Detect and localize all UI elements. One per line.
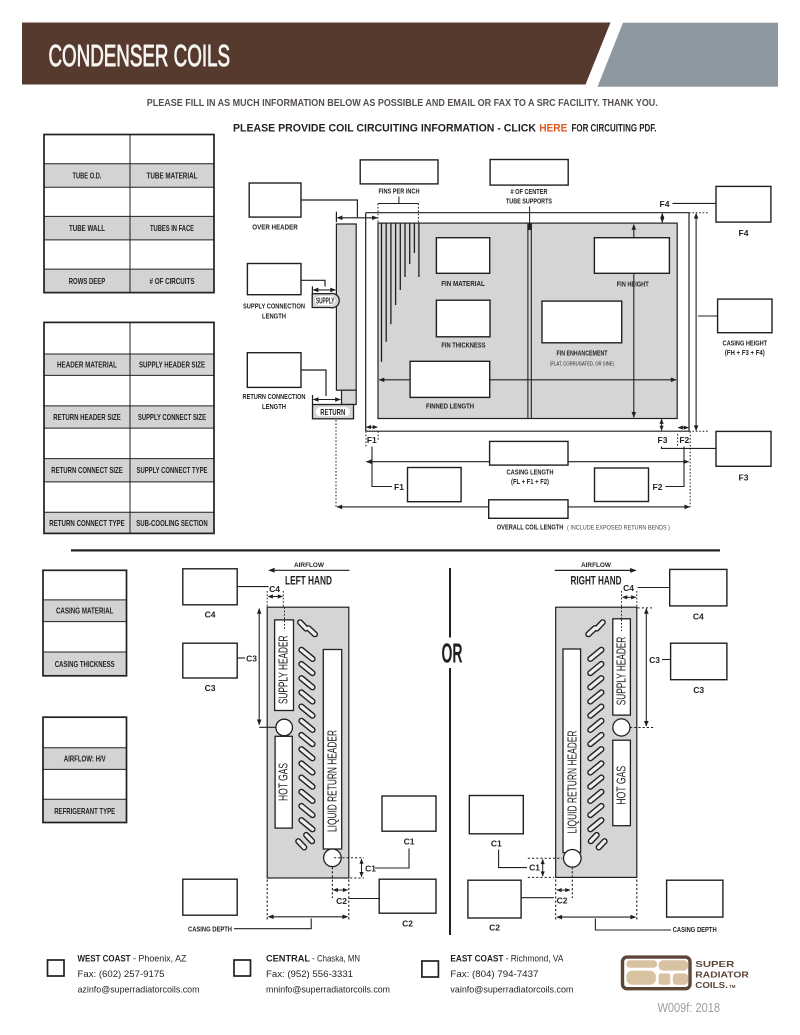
svg-text:C4: C4 [205,610,216,620]
svg-text:RETURN: RETURN [320,407,345,417]
svg-text:CASING HEIGHT: CASING HEIGHT [723,338,768,347]
svg-text:RIGHT HAND: RIGHT HAND [571,576,622,588]
svg-text:C1: C1 [404,837,415,847]
svg-text:C3: C3 [649,655,660,665]
svg-text:C2: C2 [336,896,347,906]
svg-text:AIRFLOW: AIRFLOW [294,562,325,569]
svg-text:LIQUID RETURN HEADER: LIQUID RETURN HEADER [325,730,339,832]
svg-text:F3: F3 [739,472,749,482]
svg-text:LENGTH: LENGTH [262,311,286,320]
svg-text:# OF CENTER: # OF CENTER [511,187,549,196]
svg-text:C3: C3 [246,654,257,664]
svg-text:HOT GAS: HOT GAS [276,763,290,801]
svg-text:F2: F2 [653,482,663,492]
svg-text:CASING THICKNESS: CASING THICKNESS [55,659,115,669]
svg-text:C3: C3 [693,685,704,695]
svg-text:CONDENSER COILS: CONDENSER COILS [49,39,231,73]
svg-text:(FLAT, CORRUGATED, OR SINE): (FLAT, CORRUGATED, OR SINE) [550,361,614,367]
svg-text:CENTRAL - Chaska, MN: CENTRAL - Chaska, MN [266,953,360,964]
svg-text:FINNED LENGTH: FINNED LENGTH [426,402,474,411]
svg-text:FIN THICKNESS: FIN THICKNESS [441,341,485,350]
svg-text:SUPPLY: SUPPLY [316,297,335,306]
svg-text:C2: C2 [489,923,500,933]
svg-text:TM: TM [729,984,736,989]
svg-text:SUPER: SUPER [695,960,734,969]
svg-text:(FH + F3 + F4): (FH + F3 + F4) [725,350,765,357]
svg-text:REFRIGERANT TYPE: REFRIGERANT TYPE [54,806,115,816]
svg-text:SUPPLY CONNECT TYPE: SUPPLY CONNECT TYPE [137,465,208,475]
svg-text:RADIATOR: RADIATOR [695,971,749,980]
svg-text:HERE: HERE [539,123,567,135]
svg-text:RETURN CONNECT SIZE: RETURN CONNECT SIZE [51,465,123,475]
svg-text:F1: F1 [394,482,404,492]
svg-text:Fax: (952) 556-3331: Fax: (952) 556-3331 [266,968,353,979]
svg-text:FIN ENHANCEMENT: FIN ENHANCEMENT [557,349,608,358]
svg-text:F4: F4 [660,199,670,209]
svg-text:HOT GAS: HOT GAS [615,766,629,805]
svg-text:Fax: (804) 794-7437: Fax: (804) 794-7437 [450,968,538,979]
svg-text:HEADER MATERIAL: HEADER MATERIAL [57,360,117,370]
svg-text:WEST COAST - Phoenix, AZ: WEST COAST - Phoenix, AZ [78,953,187,964]
svg-text:C4: C4 [693,612,704,622]
svg-text:LIQUID RETURN HEADER: LIQUID RETURN HEADER [565,731,579,834]
svg-text:RETURN HEADER SIZE: RETURN HEADER SIZE [53,412,121,422]
svg-text:SUPPLY CONNECTION: SUPPLY CONNECTION [243,302,305,311]
svg-text:( INCLUDE EXPOSED RETURN BENDS: ( INCLUDE EXPOSED RETURN BENDS ) [567,525,670,532]
svg-text:SUB-COOLING SECTION: SUB-COOLING SECTION [136,518,208,528]
svg-text:PLEASE FILL IN AS MUCH INFORMA: PLEASE FILL IN AS MUCH INFORMATION BELOW… [147,98,658,109]
svg-text:# OF CIRCUITS: # OF CIRCUITS [150,276,195,286]
svg-text:SUPPLY HEADER SIZE: SUPPLY HEADER SIZE [139,360,205,370]
svg-text:AIRFLOW: AIRFLOW [581,562,612,569]
svg-text:Fax: (602) 257-9175: Fax: (602) 257-9175 [78,968,165,979]
svg-text:OR: OR [442,638,463,669]
svg-text:OVERALL COIL LENGTH: OVERALL COIL LENGTH [497,523,564,532]
svg-text:TUBE O.D.: TUBE O.D. [73,170,102,180]
svg-text:CASING LENGTH: CASING LENGTH [507,467,554,476]
svg-text:F3: F3 [658,435,668,445]
svg-text:TUBE WALL: TUBE WALL [69,223,105,233]
svg-text:W009f: 2018: W009f: 2018 [658,1000,721,1015]
svg-text:LEFT HAND: LEFT HAND [285,575,332,587]
svg-text:mninfo@superradiatorcoils.com: mninfo@superradiatorcoils.com [266,984,390,995]
svg-text:F2: F2 [679,435,689,445]
svg-text:FOR CIRCUITING PDF.: FOR CIRCUITING PDF. [572,123,657,135]
svg-text:SUPPLY CONNECT SIZE: SUPPLY CONNECT SIZE [138,412,206,422]
svg-text:RETURN CONNECT TYPE: RETURN CONNECT TYPE [49,518,125,528]
svg-text:C2: C2 [557,896,568,906]
svg-text:EAST COAST - Richmond, VA: EAST COAST - Richmond, VA [450,953,564,964]
svg-text:SUPPLY HEADER: SUPPLY HEADER [277,636,291,705]
svg-text:F1: F1 [367,435,377,445]
svg-text:azinfo@superradiatorcoils.com: azinfo@superradiatorcoils.com [78,984,200,995]
svg-text:FIN MATERIAL: FIN MATERIAL [441,279,485,288]
svg-text:(FL + F1 + F2): (FL + F1 + F2) [511,479,549,486]
svg-text:FINS PER INCH: FINS PER INCH [379,187,420,196]
svg-text:CASING DEPTH: CASING DEPTH [673,925,717,934]
svg-text:CASING DEPTH: CASING DEPTH [188,925,232,934]
svg-text:LENGTH: LENGTH [262,402,286,411]
svg-text:PLEASE PROVIDE COIL CIRCUITING: PLEASE PROVIDE COIL CIRCUITING INFORMATI… [233,123,536,135]
svg-text:C1: C1 [529,863,540,873]
svg-text:C4: C4 [269,584,280,594]
svg-text:SUPPLY HEADER: SUPPLY HEADER [615,637,629,706]
svg-text:ROWS DEEP: ROWS DEEP [69,276,106,286]
svg-text:FIN HEIGHT: FIN HEIGHT [617,280,649,289]
svg-text:C2: C2 [402,919,413,929]
svg-text:TUBES IN FACE: TUBES IN FACE [150,223,194,233]
svg-text:F4: F4 [739,228,749,238]
svg-text:TUBE SUPPORTS: TUBE SUPPORTS [506,197,552,206]
svg-text:OVER HEADER: OVER HEADER [252,223,298,232]
svg-text:RETURN CONNECTION: RETURN CONNECTION [243,392,306,401]
svg-text:C4: C4 [623,583,634,593]
svg-text:C1: C1 [491,838,502,848]
svg-text:C1: C1 [365,864,376,874]
svg-text:vainfo@superradiatorcoils.com: vainfo@superradiatorcoils.com [450,984,573,995]
svg-text:C3: C3 [205,683,216,693]
svg-text:COILS.: COILS. [695,981,728,990]
svg-text:CASING MATERIAL: CASING MATERIAL [56,606,114,616]
svg-text:TUBE MATERIAL: TUBE MATERIAL [147,170,198,180]
svg-text:AIRFLOW: H/V: AIRFLOW: H/V [64,754,106,764]
